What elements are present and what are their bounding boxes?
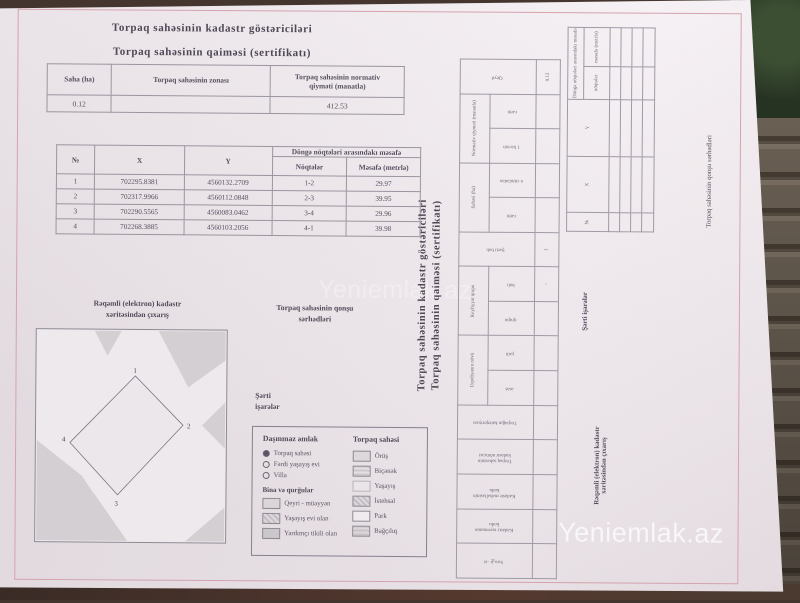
cell-distance: 29.97 [347, 176, 421, 192]
rot-value-cell: - [534, 267, 558, 302]
rot-sub-header: əsas [506, 385, 514, 391]
summary-area-value: 0.12 [47, 95, 111, 113]
rotated-coords-table-wrap: № X Y Döngə nöqtələri arasındakı məsafə … [566, 27, 656, 233]
cell-points: 2-3 [272, 190, 347, 206]
document-paper: Torpaq sahəsinin kadastr göstəriciləri T… [0, 0, 800, 600]
cell-no: 1 [56, 174, 94, 189]
summary-col-area: Saha (ha) [47, 64, 112, 96]
radio-icon [263, 461, 270, 468]
legend-item-label: Villa [274, 472, 287, 479]
rot-col-header: Kadastr məhəlləsinin kodu [472, 486, 516, 498]
rot-col-header: Şərti balı [487, 246, 505, 252]
cadastral-map-drawing: 1 2 3 4 [35, 329, 227, 542]
rot-value-cell [534, 336, 558, 371]
rot-coords-dist: məsafə (metrlə) [584, 27, 610, 66]
cell-y: 4560083.0462 [184, 205, 272, 221]
cell-x: 702290.5565 [94, 204, 184, 220]
rot-group-header: Uqodiyanın növü [458, 335, 489, 404]
rot-group-header: Sahəsi (ha) [459, 163, 490, 232]
rot-sub-header: balı [507, 281, 515, 287]
cell-x: 702268.3885 [94, 219, 184, 235]
rot-value-cell [532, 544, 556, 579]
legend-item-label: Qeyri - müəyyən [284, 500, 330, 507]
legend-item-label: Fərdi yaşayış evi [274, 461, 320, 468]
symbols-label-line1: Şərti [255, 391, 295, 402]
legend-item-label: Yardımçı tikili olan [284, 530, 337, 537]
rotated-symbols-label: Şərti işarələr [581, 279, 604, 343]
cell-x: 702295.8381 [95, 174, 185, 190]
summary-zone-value [111, 95, 270, 113]
cell-x: 702317.9966 [94, 189, 184, 205]
rot-value-cell: 0.12 [536, 60, 560, 95]
rot-col-header: Torpaq sahəsinin kadastr nömrəsi [472, 451, 516, 463]
rot-coords-no: № [567, 213, 609, 232]
legend-item-label: Bağçılıq [374, 528, 397, 535]
rot-value-cell [533, 509, 557, 544]
rot-sub-header: cəmi [507, 108, 517, 114]
map-title-line1: Rəqəmli (elektron) kadastr [60, 298, 215, 309]
legend-box: Daşınmaz əmlak Torpaq sahəsi Fərdi yaşay… [251, 426, 428, 557]
cell-points: 3-4 [272, 205, 347, 221]
legend-left-header: Daşınmaz əmlak [263, 434, 348, 444]
cell-points: 1-2 [272, 175, 347, 191]
table-row: 4 702268.3885 4560103.2056 4-1 39.98 [56, 219, 420, 237]
swatch-icon [352, 496, 370, 507]
summary-col-zone: Torpaq sahəsinin zonası [111, 64, 270, 96]
watermark-center: Yeniemlak.az [318, 275, 472, 305]
rot-coords-y: Y [567, 99, 609, 156]
legend-item-label: İstehsal [374, 498, 395, 505]
rot-sub-header: qrupu [504, 316, 516, 322]
rot-value-cell: 1 [535, 232, 559, 267]
legend-right-header: Torpaq sahəsi [353, 435, 423, 445]
rot-value-cell [534, 301, 558, 336]
rot-value-cell [535, 163, 559, 198]
cell-distance: 39.95 [347, 191, 421, 207]
rot-sub-header: şərti [506, 350, 515, 356]
rot-sub-header: cəmi [506, 212, 516, 218]
map-title-line2: xəritəsindən çıxarış [60, 309, 215, 320]
cell-no: 2 [56, 189, 94, 204]
summary-table: Saha (ha) Torpaq sahəsinin zonası Torpaq… [46, 63, 404, 115]
rot-sub-header: o cümlədən [500, 177, 523, 183]
summary-col-value-l2: qiyməti (manatla) [271, 81, 404, 91]
rot-value-cell [533, 440, 557, 475]
rot-value-cell [535, 198, 559, 233]
legend-item-label: Biçənək [375, 468, 397, 475]
vertex-label-1: 1 [133, 367, 137, 375]
legend-item-label: Park [374, 513, 387, 520]
coords-col-no: № [56, 145, 94, 174]
cell-y: 4560112.0848 [184, 190, 272, 206]
swatch-icon [352, 526, 370, 537]
svg-text:2: 2 [187, 422, 191, 430]
cell-distance: 39.98 [346, 221, 420, 237]
coords-col-x: X [95, 145, 185, 175]
rot-col-header: Sıra №-si [484, 558, 503, 564]
coordinates-table: № X Y Döngə nöqtələri arasındakı məsafə … [56, 144, 422, 237]
svg-text:3: 3 [114, 500, 118, 508]
svg-text:4: 4 [62, 435, 66, 443]
rot-coords-x: X [567, 156, 609, 213]
legend-item-label: Yaşayış evi olan [284, 515, 328, 522]
rotated-indicators-table-wrap: Sıra №-si Kadastr rayonunun kodu Kadastr… [456, 58, 560, 579]
rot-group-header: Normativ qiyməti (manatla) [460, 94, 491, 163]
cadastral-map: 1 2 3 4 [34, 328, 228, 544]
cell-y: 4560132.2709 [184, 175, 272, 191]
swatch-icon [352, 511, 370, 522]
rot-value-cell [533, 474, 557, 509]
document-title: Torpaq sahəsinin kadastr göstəriciləri [62, 21, 362, 35]
rot-col-header: Kadastr rayonunun kodu [472, 520, 516, 532]
coords-sub-distance: Məsafə (metrlə) [347, 157, 421, 177]
legend-item-label: Yaşayış [375, 483, 396, 490]
rotated-map-label: Rəqəmli (elektron) kadastr xəritəsindən … [593, 404, 618, 528]
radio-icon [263, 472, 270, 479]
rot-coords-points: nöqtələr [584, 67, 610, 100]
neighbors-label-line2: sərhədləri [250, 314, 380, 325]
coords-sub-points: Nöqtələr [272, 156, 347, 176]
legend-item-label: Torpaq sahəsi [274, 450, 312, 457]
swatch-icon [262, 513, 280, 524]
rot-coords-group: Döngə nöqtələri arasındakı məsafə [568, 27, 585, 99]
rot-col-header: Torpağın kateqoriyası [473, 419, 517, 425]
coords-col-y: Y [184, 146, 272, 176]
cell-points: 4-1 [272, 220, 347, 236]
rot-value-cell [533, 405, 557, 440]
document-subtitle: Torpaq sahəsinin qaiməsi (sertifikatı) [62, 45, 362, 59]
coords-group-header: Döngə nöqtələri arasındakı məsafə [272, 146, 421, 157]
rot-value-cell [536, 94, 560, 129]
cell-no: 4 [56, 219, 94, 234]
swatch-icon [262, 498, 280, 509]
rot-sub-header: 1 ha-nın [503, 143, 520, 149]
radio-icon [263, 450, 270, 457]
legend-item-label: Örüş [375, 453, 388, 460]
rotated-neighbors-label: Torpaq sahəsinin qonşu sərhədləri [705, 106, 720, 256]
swatch-icon [262, 528, 280, 539]
summary-normative-value: 412.53 [270, 96, 404, 114]
watermark-bottom-right: Yeniemlak.az [558, 517, 724, 549]
cell-no: 3 [56, 204, 94, 219]
swatch-icon [353, 451, 371, 462]
swatch-icon [352, 481, 370, 492]
rot-col-header: Qeyd [492, 74, 503, 80]
swatch-icon [353, 466, 371, 477]
symbols-label-line2: işarələr [255, 402, 295, 413]
cell-y: 4560103.2056 [184, 220, 272, 236]
legend-buildings-header: Bina və qurğular [262, 486, 347, 495]
cell-distance: 29.96 [346, 206, 420, 222]
rot-value-cell [536, 129, 560, 164]
rot-value-cell [534, 371, 558, 406]
